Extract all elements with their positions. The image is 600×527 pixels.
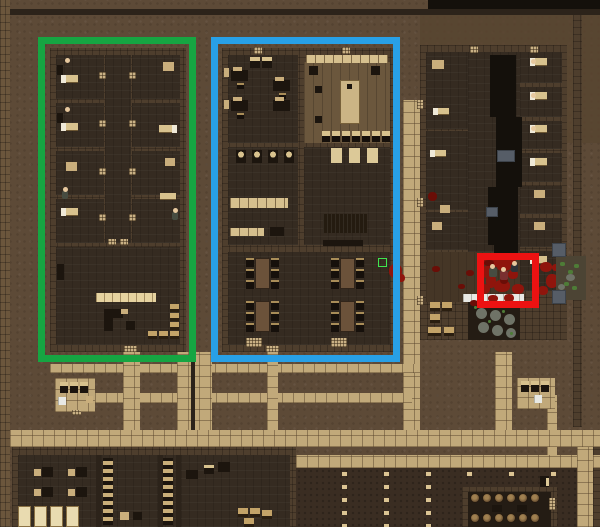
grass-tuft bbox=[560, 262, 565, 266]
crate bbox=[428, 327, 441, 336]
desk-chair bbox=[34, 469, 41, 476]
annotation-box-red bbox=[477, 253, 539, 308]
basin bbox=[58, 397, 66, 405]
crop-dot bbox=[426, 485, 431, 489]
road-vertical-dorm-west bbox=[123, 352, 140, 432]
crate bbox=[430, 302, 440, 311]
stone-chunk bbox=[492, 325, 503, 336]
debris bbox=[510, 332, 513, 335]
bed bbox=[18, 506, 31, 527]
crop-dot bbox=[342, 498, 347, 502]
crate bbox=[238, 508, 248, 517]
crop-dot bbox=[509, 472, 514, 476]
barrel bbox=[494, 513, 504, 523]
fuel-container bbox=[80, 382, 88, 393]
grass-tuft bbox=[574, 264, 579, 268]
barrel bbox=[470, 513, 480, 523]
crop-dot bbox=[342, 511, 347, 515]
road-horizontal-main bbox=[10, 430, 600, 447]
bed-pillow bbox=[530, 158, 535, 166]
door bbox=[72, 410, 81, 415]
slate-tiles bbox=[486, 207, 498, 217]
shelf-stack bbox=[163, 458, 173, 525]
road-horizontal-south bbox=[296, 455, 600, 468]
barrel bbox=[518, 493, 528, 503]
crop-dot bbox=[426, 472, 431, 476]
door bbox=[530, 46, 538, 53]
perimeter-wall-top bbox=[10, 9, 600, 15]
annotation-box-green bbox=[38, 37, 196, 362]
dresser bbox=[440, 205, 450, 213]
fuel-container bbox=[70, 382, 78, 393]
burned-area bbox=[490, 55, 516, 117]
sleeping-colonist-head bbox=[531, 59, 536, 64]
road-vertical-east bbox=[495, 352, 512, 432]
fuel-container bbox=[541, 381, 549, 392]
door bbox=[470, 46, 478, 53]
bed-pillow bbox=[430, 150, 435, 157]
blood-splatter bbox=[432, 266, 440, 272]
debris bbox=[488, 320, 491, 323]
stone-chunk bbox=[566, 274, 575, 281]
stone-chunk bbox=[478, 322, 489, 333]
barrel bbox=[506, 493, 516, 503]
road-vertical-center bbox=[403, 100, 420, 432]
crop-dot bbox=[342, 485, 347, 489]
door bbox=[417, 296, 423, 305]
machine bbox=[492, 505, 502, 512]
barrel bbox=[482, 493, 492, 503]
dresser bbox=[432, 60, 444, 69]
map-border-wall-left bbox=[0, 0, 10, 527]
shelf-stack bbox=[103, 458, 113, 525]
crop-dot bbox=[384, 511, 389, 515]
crop-dot bbox=[467, 472, 472, 476]
door bbox=[417, 198, 423, 207]
barrel bbox=[530, 513, 540, 523]
crate bbox=[430, 314, 440, 323]
barrel bbox=[482, 513, 492, 523]
cabinet bbox=[204, 465, 214, 474]
road-vertical-workhall bbox=[267, 352, 278, 432]
crop-dot bbox=[384, 498, 389, 502]
crop-dot bbox=[551, 472, 556, 476]
fuel-container bbox=[531, 381, 539, 392]
machine bbox=[218, 462, 230, 472]
door bbox=[417, 100, 423, 109]
bed bbox=[50, 506, 63, 527]
sleeping-colonist-head bbox=[531, 93, 536, 98]
annotation-box-blue bbox=[211, 37, 400, 362]
barrel bbox=[518, 513, 528, 523]
crop-dot bbox=[426, 511, 431, 515]
workdesk bbox=[76, 487, 87, 497]
blood-splatter bbox=[458, 284, 465, 289]
roof-shadow-topright bbox=[428, 0, 600, 9]
grass-tuft bbox=[572, 286, 577, 290]
blood-splatter bbox=[428, 192, 437, 201]
slate-tiles bbox=[552, 290, 566, 304]
fuel-container bbox=[60, 382, 68, 393]
blood-splatter bbox=[538, 286, 548, 295]
road-vertical-southeast bbox=[577, 447, 593, 527]
crop-dot bbox=[342, 472, 347, 476]
machine bbox=[133, 512, 142, 520]
stone-chunk bbox=[490, 310, 501, 321]
barrel bbox=[470, 493, 480, 503]
workdesk bbox=[42, 487, 53, 497]
barrel bbox=[506, 513, 516, 523]
fuel-container bbox=[521, 381, 529, 392]
dresser bbox=[432, 222, 442, 230]
road-horizontal-upper bbox=[50, 364, 420, 373]
sleeping-colonist-head bbox=[531, 126, 536, 131]
colony-map-viewport[interactable] bbox=[0, 0, 600, 527]
crate bbox=[444, 327, 454, 336]
blood-splatter bbox=[540, 262, 552, 272]
crate bbox=[250, 508, 260, 517]
barrel bbox=[530, 493, 540, 503]
east-bedroom bbox=[520, 52, 562, 83]
east-room bbox=[426, 212, 468, 250]
dresser bbox=[534, 222, 545, 230]
basin bbox=[534, 395, 542, 403]
crop-dot bbox=[384, 472, 389, 476]
slate-tiles bbox=[552, 243, 566, 257]
workdesk bbox=[42, 467, 53, 477]
dresser bbox=[534, 190, 545, 198]
crate bbox=[120, 512, 129, 520]
hauler-item bbox=[546, 478, 549, 486]
road-horizontal-mid bbox=[95, 393, 412, 403]
crate bbox=[244, 518, 254, 527]
blood-splatter bbox=[466, 270, 474, 276]
south-wall bbox=[96, 455, 101, 527]
debris bbox=[502, 310, 505, 313]
bed-pillow bbox=[433, 108, 438, 115]
bed bbox=[66, 506, 79, 527]
desk-chair bbox=[34, 489, 41, 496]
desk-chair bbox=[68, 489, 75, 496]
crate bbox=[442, 302, 452, 311]
bed bbox=[34, 506, 47, 527]
crop-dot bbox=[384, 485, 389, 489]
door bbox=[549, 498, 555, 510]
machine bbox=[186, 470, 198, 479]
machine bbox=[517, 505, 527, 512]
east-fence bbox=[573, 15, 582, 427]
road-divider bbox=[191, 352, 195, 432]
barrel bbox=[494, 493, 504, 503]
burned-area bbox=[494, 240, 518, 254]
crate bbox=[262, 510, 272, 519]
desk-chair bbox=[68, 469, 75, 476]
slate-tiles bbox=[497, 150, 515, 162]
workdesk bbox=[76, 467, 87, 477]
south-wall bbox=[176, 455, 181, 527]
crop-dot bbox=[426, 498, 431, 502]
stone-chunk bbox=[476, 308, 487, 319]
kitchen-item bbox=[86, 396, 93, 403]
stone-chunk bbox=[504, 314, 515, 325]
